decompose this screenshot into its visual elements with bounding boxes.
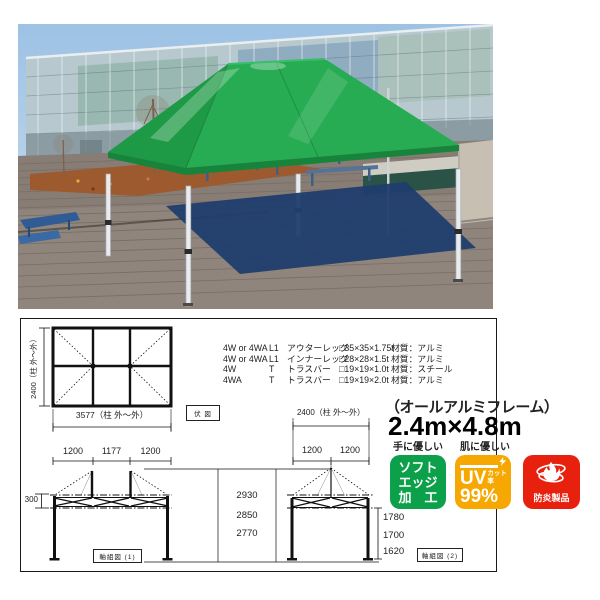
spec-material: 材質：アルミ: [391, 375, 465, 386]
spec-model: 4W: [223, 364, 269, 375]
spec-part: トラスバー: [287, 375, 339, 386]
elevation-2-drawing: [287, 418, 382, 561]
elevation-2-width-dimension: 2400（柱 外～外）: [291, 407, 371, 418]
flame-badge-label: 防炎製品: [523, 491, 580, 504]
flame-retardant-badge: 防炎製品: [523, 455, 580, 509]
plan-segment-2: 1177: [93, 446, 130, 456]
spec-code: L1: [269, 343, 287, 354]
tent-leg-back-left: [105, 174, 112, 256]
leg-height-value-1: 1780: [383, 512, 404, 523]
uv-badge: UV カット率 99%: [455, 455, 511, 509]
elevation-2-segment-2: 1200: [331, 445, 369, 455]
spec-size: □28×28×1.5t: [339, 354, 391, 365]
flame-icon: [534, 460, 568, 490]
spec-material: 材質：スチール: [391, 364, 465, 375]
uv-caption: 肌に優しい: [455, 438, 515, 453]
spec-model: 4WA: [223, 375, 269, 386]
spec-material: 材質：アルミ: [391, 354, 465, 365]
elevation-2-label: 軸組図 (2): [417, 548, 463, 562]
plan-segment-1: 1200: [53, 446, 93, 456]
page: 2400（柱 外～外） 3577（柱 外～外） 1200 1177 1200 伏…: [0, 0, 600, 600]
soft-edge-badge: ソフト エッジ 加 工: [390, 455, 446, 509]
plan-view-label: 伏 図: [186, 405, 220, 421]
elevation-1-drawing: [35, 471, 173, 561]
spec-diagram-panel: 2400（柱 外～外） 3577（柱 外～外） 1200 1177 1200 伏…: [20, 318, 497, 572]
spec-code: T: [269, 364, 287, 375]
spec-code: L1: [269, 354, 287, 365]
spec-material: 材質：アルミ: [391, 343, 465, 354]
uv-percent: 99%: [460, 487, 498, 506]
spec-table: 4W or 4WA L1 アウターレッグ □35×35×1.75t 材質：アルミ…: [223, 343, 465, 385]
soft-edge-caption: 手に優しい: [389, 438, 447, 453]
spec-code: T: [269, 375, 287, 386]
sparkle-icon: [498, 457, 507, 466]
soft-edge-line3: 加 工: [398, 490, 437, 505]
height-value-1: 2930: [219, 490, 275, 501]
spec-model: 4W or 4WA: [223, 343, 269, 354]
height-value-2: 2850: [219, 510, 275, 521]
elevation-2-segment-1: 1200: [293, 445, 331, 455]
height-value-3: 2770: [219, 528, 275, 539]
leg-height-value-2: 1700: [383, 530, 404, 541]
spec-size: □35×35×1.75t: [339, 343, 391, 354]
spec-model: 4W or 4WA: [223, 354, 269, 365]
plan-width-dimension: 3577（柱 外～外）: [53, 409, 171, 421]
spec-part: インナーレッグ: [287, 354, 339, 365]
spec-size: □19×19×1.0t: [339, 364, 391, 375]
soft-edge-line1: ソフト: [398, 460, 437, 475]
spec-part: トラスバー: [287, 364, 339, 375]
spec-size: □19×19×2.0t: [339, 375, 391, 386]
plan-view-drawing: [39, 328, 171, 465]
photo-scene: [18, 24, 493, 309]
product-photo: [18, 24, 493, 309]
elevation-1-label: 軸組図 (1): [93, 549, 142, 563]
soft-edge-line2: エッジ: [398, 475, 437, 490]
truss-height-dimension: 300: [22, 495, 38, 504]
plan-side-dimension: 2400（柱 外～外）: [28, 327, 40, 407]
concrete-wall: [458, 140, 493, 224]
spec-part: アウターレッグ: [287, 343, 339, 354]
plan-segment-3: 1200: [130, 446, 171, 456]
leg-height-value-3: 1620: [383, 546, 404, 557]
